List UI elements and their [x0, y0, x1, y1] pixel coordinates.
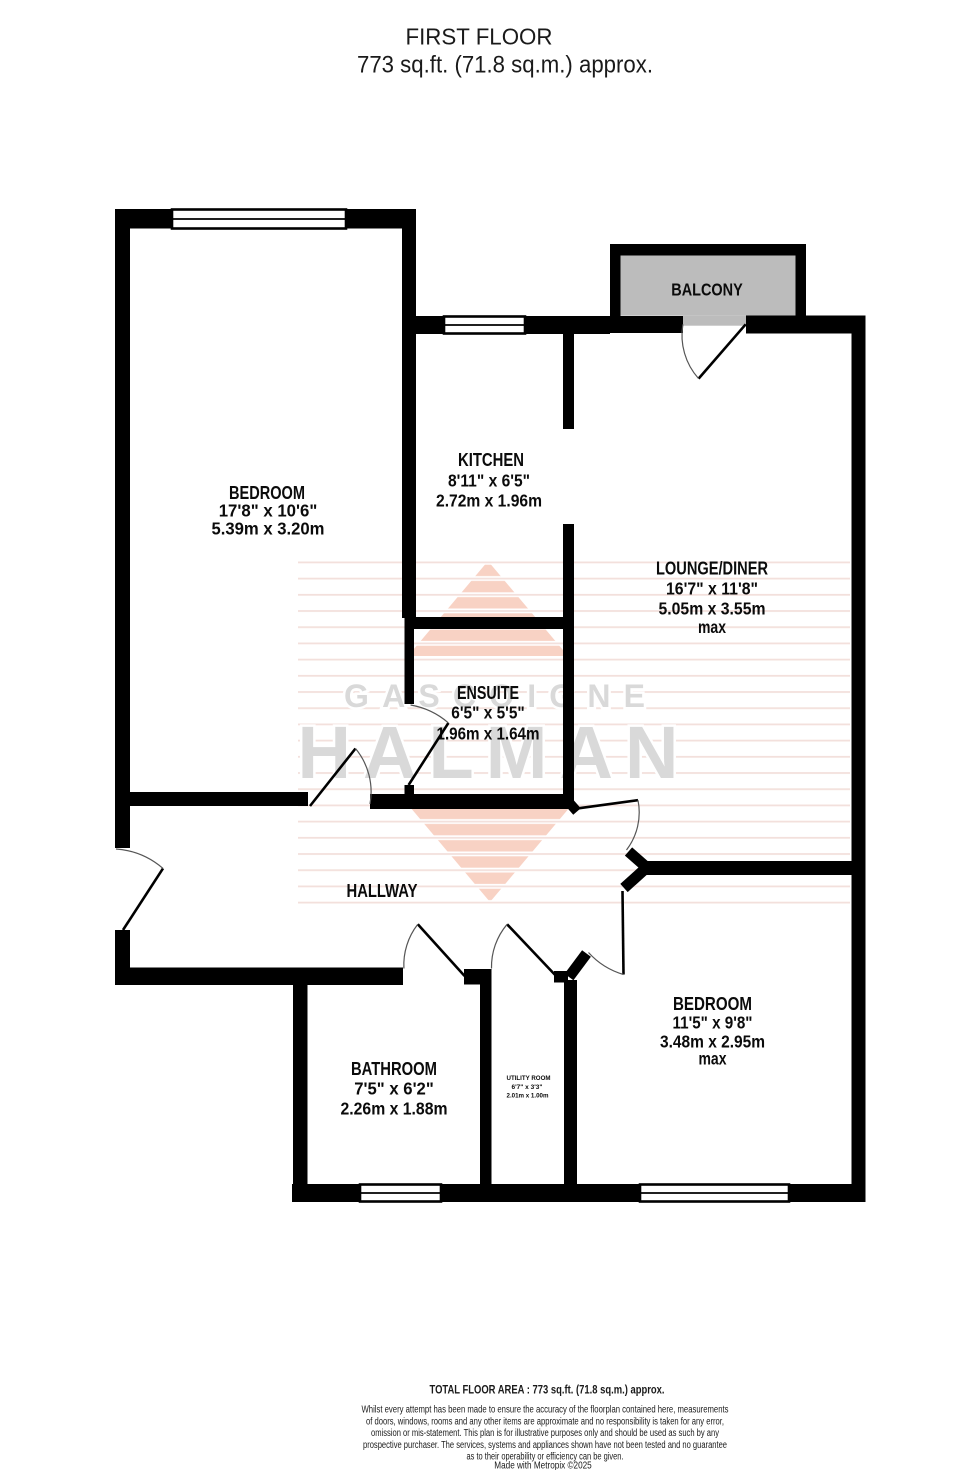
svg-text:2.72m x 1.96m: 2.72m x 1.96m [436, 491, 542, 511]
svg-text:HALLWAY: HALLWAY [347, 880, 419, 901]
svg-text:UTILITY ROOM: UTILITY ROOM [507, 1075, 551, 1082]
svg-text:2.26m x 1.88m: 2.26m x 1.88m [341, 1099, 448, 1119]
svg-text:prospective purchaser. The ser: prospective purchaser. The services, sys… [363, 1440, 727, 1451]
svg-text:8'11" x 6'5": 8'11" x 6'5" [448, 470, 530, 490]
svg-text:5.05m x 3.55m: 5.05m x 3.55m [659, 599, 766, 619]
svg-text:of doors, windows, rooms and a: of doors, windows, rooms and any other i… [366, 1416, 724, 1427]
svg-text:2.01m x 1.00m: 2.01m x 1.00m [507, 1093, 549, 1100]
svg-text:max: max [699, 1049, 727, 1069]
svg-text:BEDROOM: BEDROOM [673, 993, 752, 1014]
svg-text:11'5" x 9'8": 11'5" x 9'8" [673, 1013, 753, 1033]
svg-text:FIRST FLOOR: FIRST FLOOR [406, 24, 553, 50]
svg-text:773 sq.ft. (71.8 sq.m.) approx: 773 sq.ft. (71.8 sq.m.) approx. [357, 52, 653, 79]
svg-text:Whilst every attempt has been: Whilst every attempt has been made to en… [362, 1405, 729, 1416]
svg-text:1.96m x 1.64m: 1.96m x 1.64m [437, 724, 540, 744]
svg-text:Made with Metropix ©2025: Made with Metropix ©2025 [494, 1460, 591, 1470]
svg-text:KITCHEN: KITCHEN [458, 449, 524, 470]
svg-text:6'5" x 5'5": 6'5" x 5'5" [451, 703, 525, 723]
svg-text:ENSUITE: ENSUITE [457, 682, 519, 703]
svg-text:TOTAL FLOOR AREA : 773 sq.ft.: TOTAL FLOOR AREA : 773 sq.ft. (71.8 sq.m… [430, 1383, 665, 1397]
svg-text:BATHROOM: BATHROOM [351, 1058, 437, 1079]
svg-text:5.39m x 3.20m: 5.39m x 3.20m [212, 519, 325, 539]
svg-text:16'7" x 11'8": 16'7" x 11'8" [666, 579, 758, 599]
svg-text:BALCONY: BALCONY [671, 279, 743, 299]
svg-text:17'8" x 10'6": 17'8" x 10'6" [219, 501, 318, 521]
svg-text:LOUNGE/DINER: LOUNGE/DINER [656, 558, 768, 579]
svg-text:6'7" x 3'3": 6'7" x 3'3" [512, 1084, 543, 1091]
svg-text:omission or mis-statement. Thi: omission or mis-statement. This plan is … [371, 1428, 719, 1439]
svg-text:max: max [698, 617, 726, 637]
svg-text:7'5" x 6'2": 7'5" x 6'2" [354, 1079, 434, 1099]
